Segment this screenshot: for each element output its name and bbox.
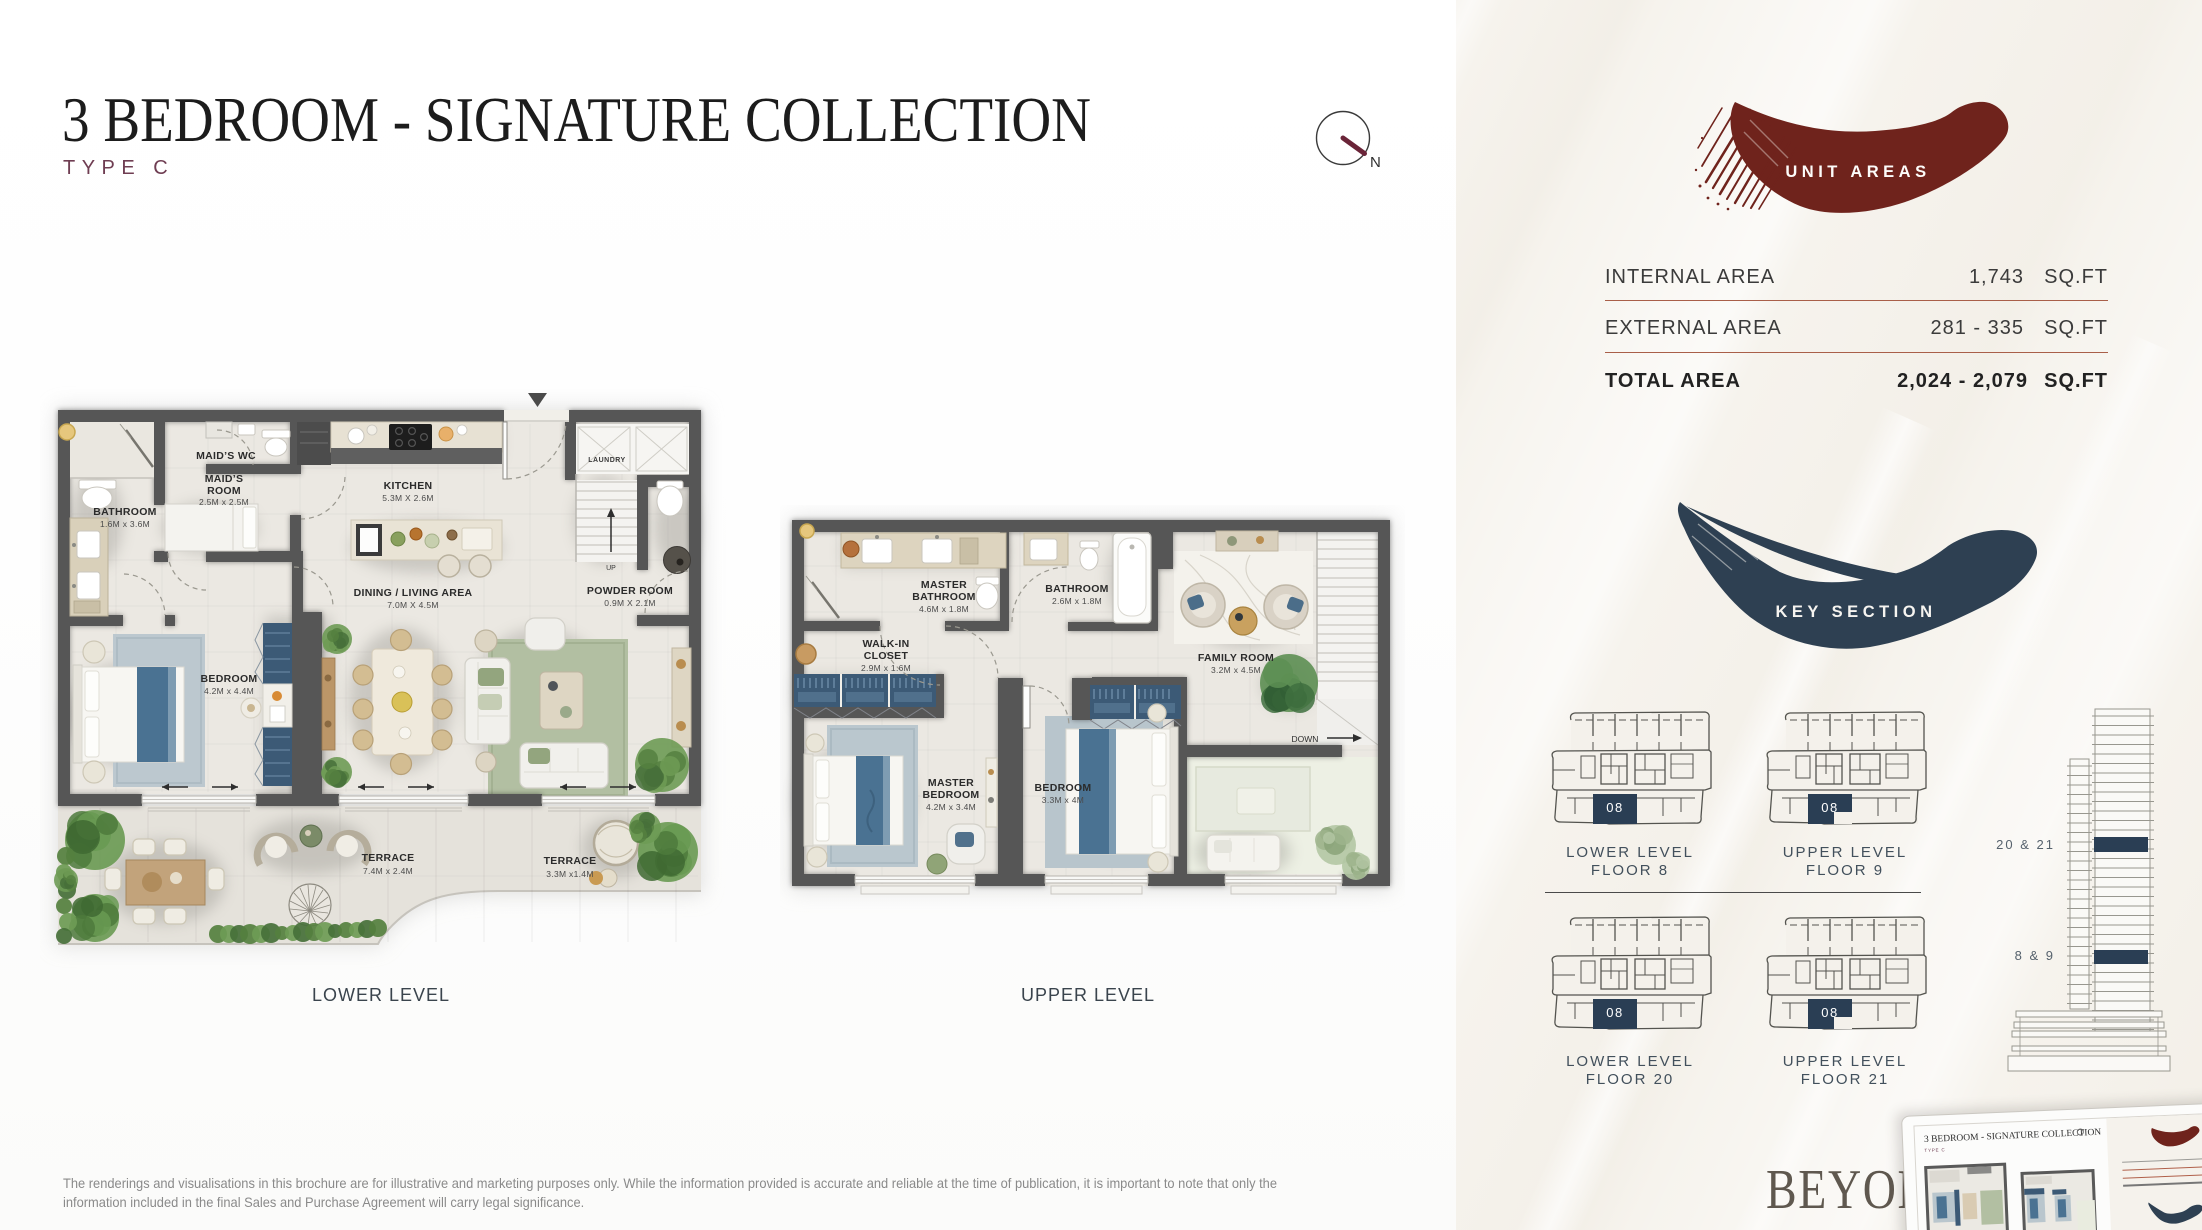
svg-text:2.5M x 2.5M: 2.5M x 2.5M	[199, 497, 249, 507]
svg-text:4.2M x 4.4M: 4.2M x 4.4M	[204, 686, 254, 696]
svg-text:2.6M x 1.8M: 2.6M x 1.8M	[1052, 596, 1102, 606]
svg-text:4.6M x 1.8M: 4.6M x 1.8M	[919, 604, 969, 614]
svg-text:TERRACE: TERRACE	[362, 852, 415, 864]
svg-text:CLOSET: CLOSET	[864, 650, 909, 662]
svg-text:DINING / LIVING AREA: DINING / LIVING AREA	[354, 587, 473, 599]
svg-text:ROOM: ROOM	[207, 485, 241, 497]
svg-text:0.9M X 2.1M: 0.9M X 2.1M	[604, 598, 656, 608]
svg-text:1.6M x 3.6M: 1.6M x 3.6M	[100, 519, 150, 529]
svg-text:POWDER ROOM: POWDER ROOM	[587, 585, 673, 597]
svg-text:MASTER: MASTER	[921, 579, 967, 591]
svg-text:WALK-IN: WALK-IN	[862, 638, 909, 650]
svg-text:3.3M x1.4M: 3.3M x1.4M	[546, 869, 593, 879]
svg-text:4.2M x 3.4M: 4.2M x 3.4M	[926, 802, 976, 812]
svg-text:BEDROOM: BEDROOM	[923, 789, 980, 801]
svg-text:5.3M X 2.6M: 5.3M X 2.6M	[382, 493, 434, 503]
svg-text:MAID’S WC: MAID’S WC	[196, 450, 256, 462]
svg-text:TERRACE: TERRACE	[544, 855, 597, 867]
svg-text:7.0M X 4.5M: 7.0M X 4.5M	[387, 600, 439, 610]
svg-text:DOWN: DOWN	[1292, 734, 1319, 744]
svg-text:08: 08	[1821, 800, 1838, 815]
svg-text:3.2M x 4.5M: 3.2M x 4.5M	[1211, 665, 1261, 675]
svg-text:7.4M x 2.4M: 7.4M x 2.4M	[363, 866, 413, 876]
svg-text:2.9M x 1.6M: 2.9M x 1.6M	[861, 663, 911, 673]
svg-text:KITCHEN: KITCHEN	[384, 480, 433, 492]
svg-text:08: 08	[1821, 1005, 1838, 1020]
svg-text:UP: UP	[606, 565, 616, 572]
svg-text:FAMILY ROOM: FAMILY ROOM	[1198, 652, 1274, 664]
svg-text:BATHROOM: BATHROOM	[1045, 583, 1108, 595]
svg-text:BATHROOM: BATHROOM	[912, 591, 975, 603]
svg-text:LAUNDRY: LAUNDRY	[588, 457, 625, 464]
svg-text:MAID’S: MAID’S	[205, 473, 244, 485]
svg-text:08: 08	[1606, 1005, 1623, 1020]
svg-text:N: N	[1370, 154, 1381, 171]
svg-text:3.3M x 4M: 3.3M x 4M	[1042, 795, 1084, 805]
svg-text:UNIT AREAS: UNIT AREAS	[1785, 163, 1930, 181]
svg-text:MASTER: MASTER	[928, 777, 974, 789]
svg-text:KEY SECTION: KEY SECTION	[1775, 603, 1936, 621]
svg-text:08: 08	[1606, 800, 1623, 815]
svg-text:BEDROOM: BEDROOM	[1035, 782, 1092, 794]
svg-text:BEDROOM: BEDROOM	[201, 673, 258, 685]
svg-text:BATHROOM: BATHROOM	[93, 506, 156, 518]
